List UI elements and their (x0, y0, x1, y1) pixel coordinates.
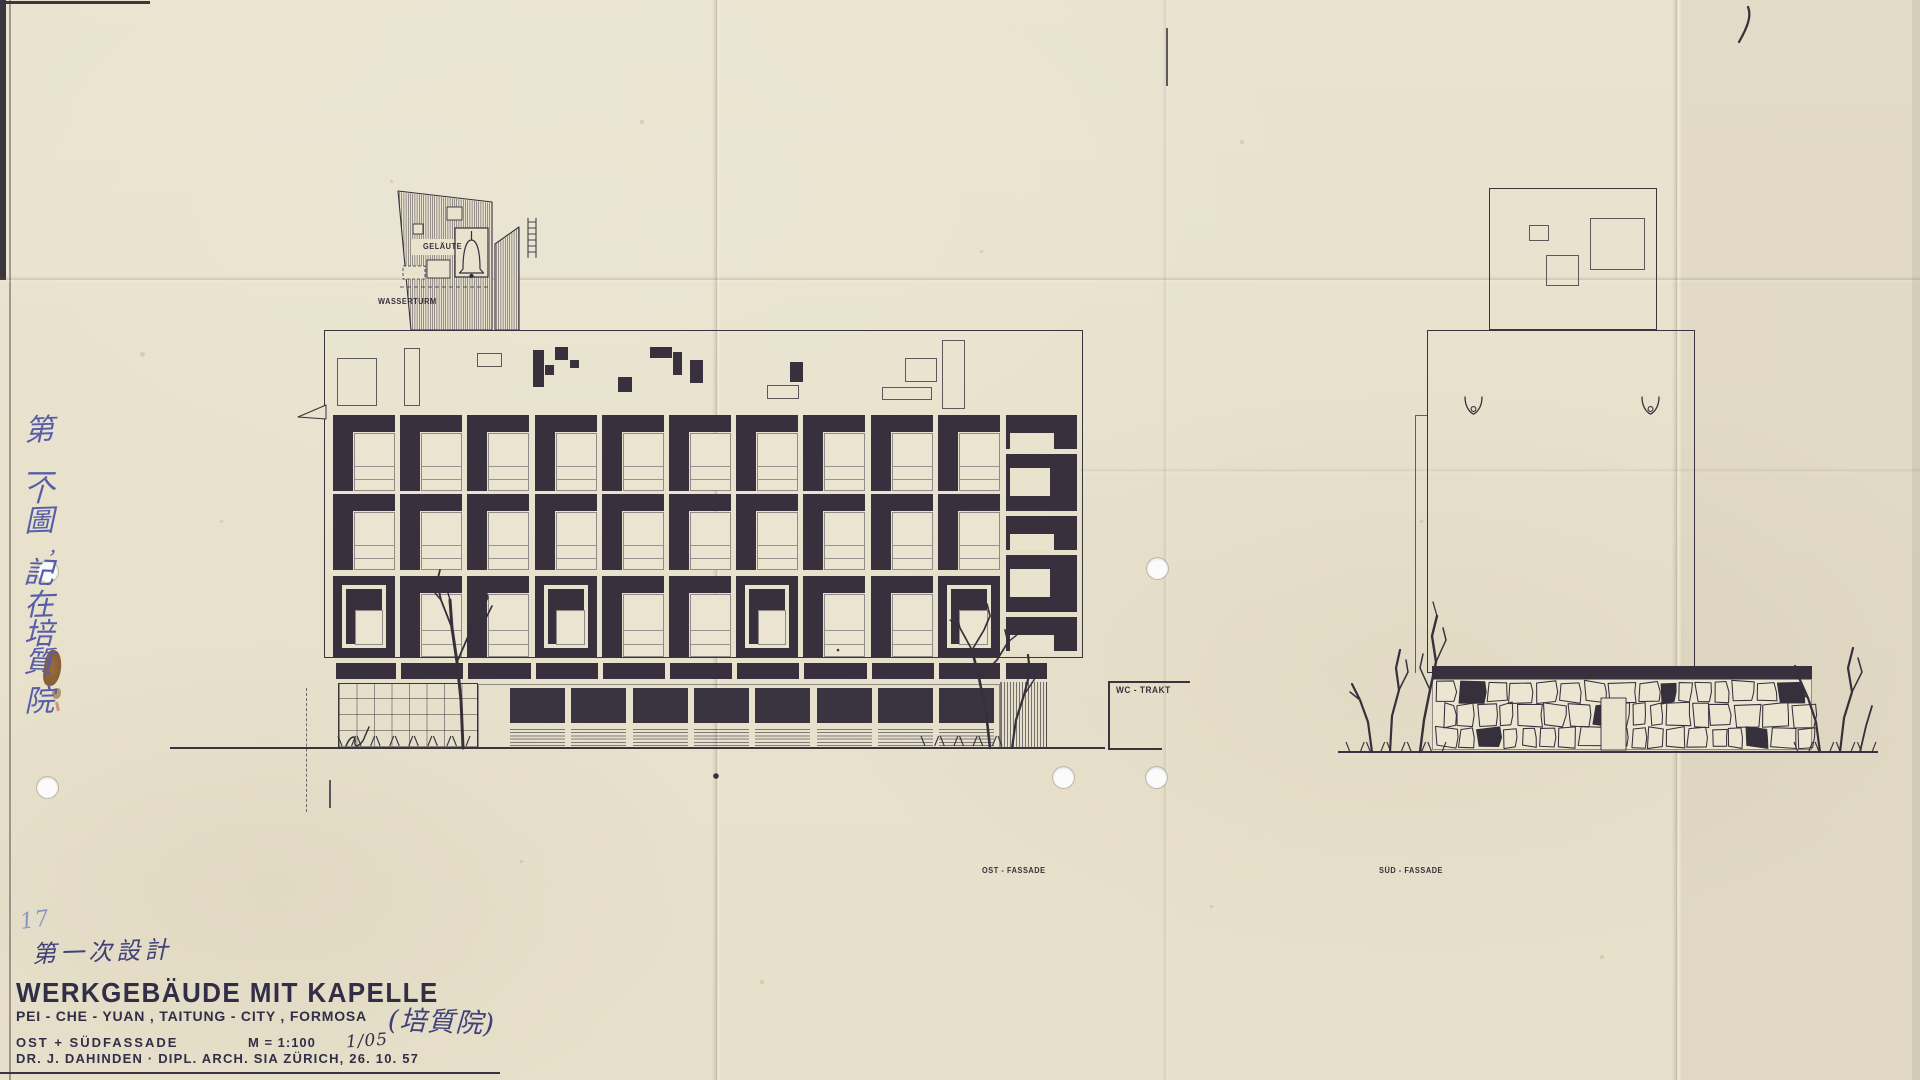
east-elevation-label: OST - FASSADE (982, 866, 1046, 875)
title-block-rule (0, 1072, 500, 1074)
location-line: PEI - CHE - YUAN , TAITUNG - CITY , FORM… (16, 1008, 367, 1024)
credit-line: DR. J. DAHINDEN · DIPL. ARCH. SIA ZÜRICH… (16, 1051, 419, 1066)
south-elevation-label: SÜD - FASSADE (1379, 866, 1443, 875)
bell-cage-label: GELÄUTE (423, 242, 462, 251)
sheet-ref: 1/05 (345, 1030, 388, 1053)
water-tower-label: WASSERTURM (378, 297, 437, 306)
side-note-char: 院 (23, 675, 55, 720)
text-layer: GELÄUTE WASSERTURM WC - TRAKT OST - FASS… (0, 0, 1920, 1080)
side-note-char: 第 (23, 404, 55, 449)
drawing-sheet: GELÄUTE WASSERTURM WC - TRAKT OST - FASS… (0, 0, 1920, 1080)
sheet-title: WERKGEBÄUDE MIT KAPELLE (16, 977, 439, 1009)
sheet-number-pencil: 17 (18, 906, 51, 935)
location-handwritten: (培質院) (387, 998, 495, 1041)
handwritten-note: 第一次設計 (31, 930, 172, 970)
scale-label: M = 1:100 (248, 1035, 316, 1050)
wc-wing-label: WC - TRAKT (1116, 685, 1171, 695)
views-label: OST + SÜDFASSADE (16, 1035, 178, 1050)
